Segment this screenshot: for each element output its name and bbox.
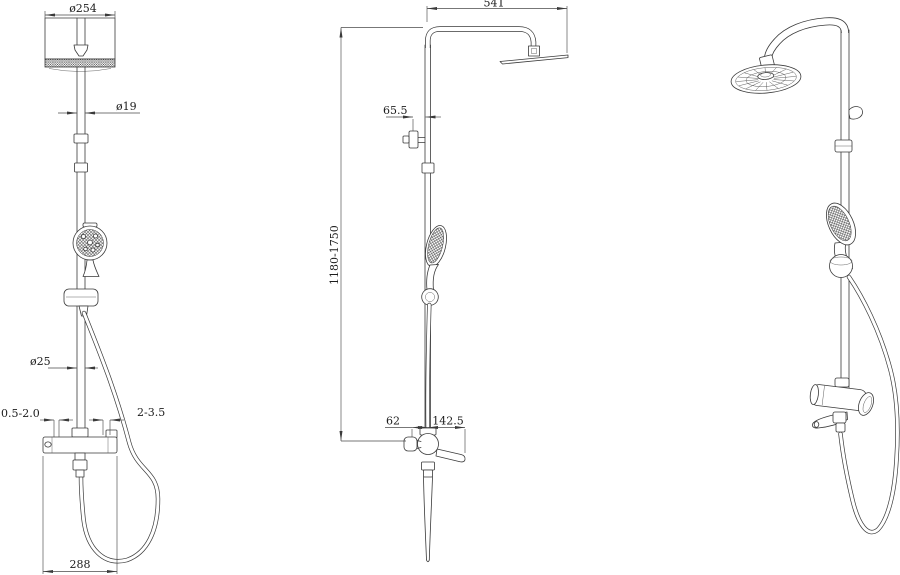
dim-label-wall-gap-right: 2-3.5	[137, 406, 165, 419]
dim-label-spout-reach: 142.5	[432, 415, 464, 428]
diverter-step-3	[76, 470, 84, 477]
diverter-step-2	[73, 460, 87, 470]
nozzle-face-band	[45, 59, 115, 67]
technical-drawing-page: ø254 ø19 ø25 0.5-2.0 2-3.5	[0, 0, 900, 575]
dim-label-arm-reach: 541	[484, 0, 505, 10]
dim-label-riser-diameter: ø25	[30, 355, 51, 368]
valve-left-port	[45, 442, 51, 447]
dim-label-valve-width: 288	[70, 558, 91, 571]
diverter-step-1	[75, 453, 85, 460]
dim-label-bracket-offset: 65.5	[383, 104, 408, 117]
dim-label-head-diameter: ø254	[69, 2, 97, 15]
pipe-union-upper	[74, 134, 88, 143]
dim-label-handle-offset: 62	[386, 415, 400, 428]
hose-holder-perspective	[830, 255, 853, 278]
pipe-union-lower	[75, 163, 88, 172]
pipe-union-side	[422, 163, 434, 173]
rain-shower-head-front	[45, 18, 115, 72]
valve-body	[43, 437, 117, 453]
valve-body-side	[418, 434, 439, 455]
shower-hose-side-upper	[428, 305, 430, 428]
valve-handle-side	[404, 437, 417, 451]
dim-label-pipe-diameter: ø19	[116, 100, 137, 113]
dim-label-wall-gap-left: 0.5-2.0	[1, 407, 40, 420]
valve-inlet-collar	[72, 428, 88, 437]
head-joint-side	[529, 46, 540, 56]
dim-label-height-range: 1180-1750	[328, 225, 341, 285]
shower-system-dimension-drawing: ø254 ø19 ø25 0.5-2.0 2-3.5	[0, 0, 900, 575]
hose-holder-side	[422, 289, 439, 306]
